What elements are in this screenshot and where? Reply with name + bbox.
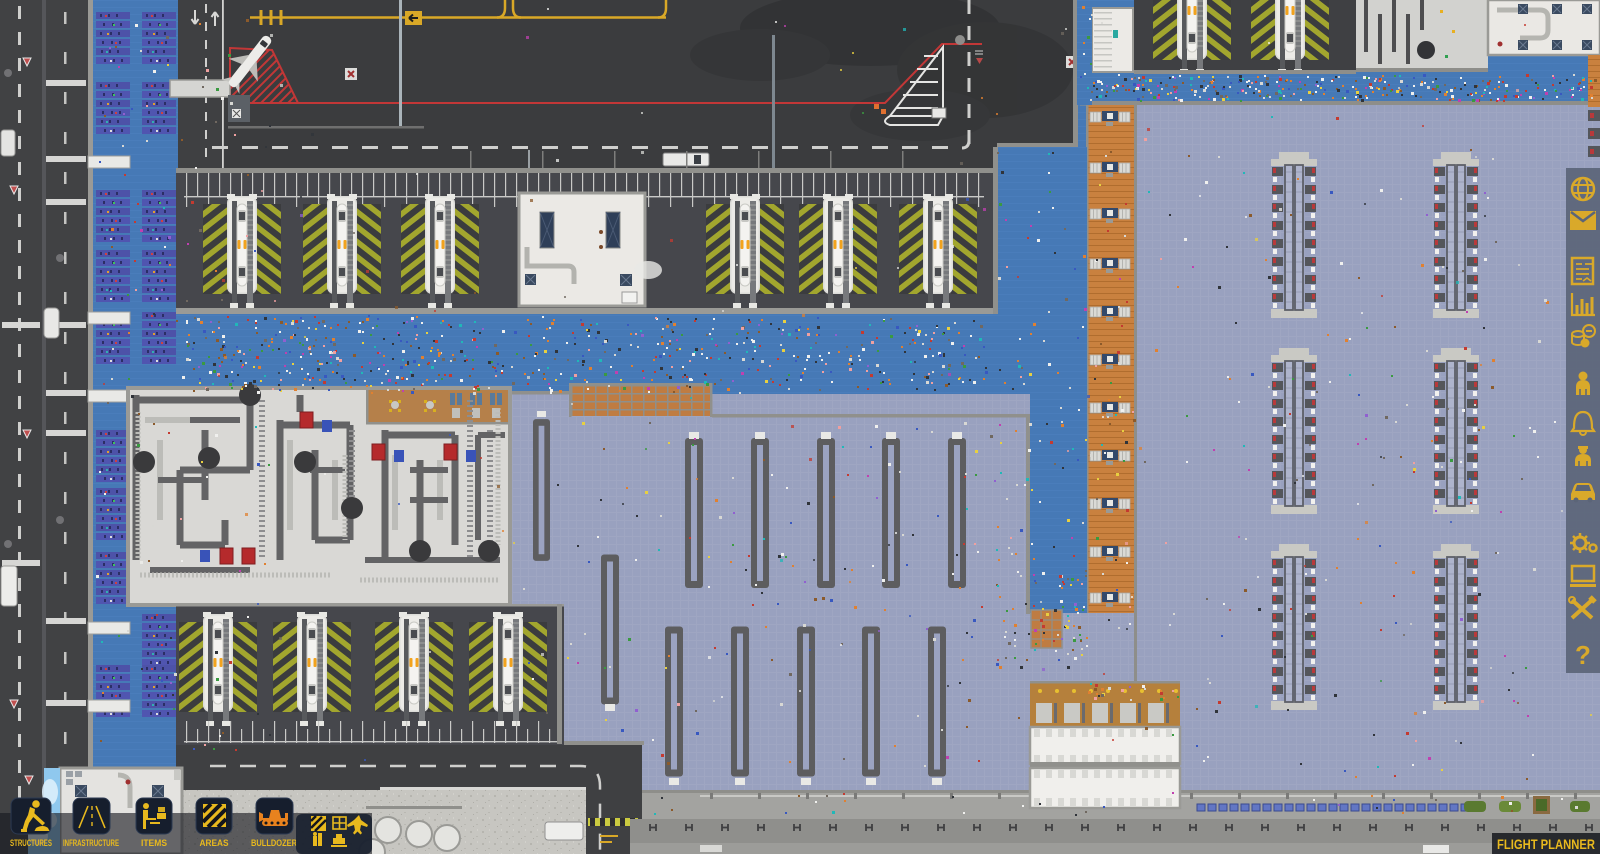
svg-text:AREAS: AREAS xyxy=(200,838,229,848)
svg-text:FLIGHT PLANNER: FLIGHT PLANNER xyxy=(1497,836,1595,852)
svg-text:BULLDOZER: BULLDOZER xyxy=(251,838,297,848)
svg-text:ITEMS: ITEMS xyxy=(141,838,167,848)
svg-text:?: ? xyxy=(1575,640,1591,670)
svg-text:INFRASTRUCTURE: INFRASTRUCTURE xyxy=(63,838,119,848)
svg-text:STRUCTURES: STRUCTURES xyxy=(10,838,52,848)
